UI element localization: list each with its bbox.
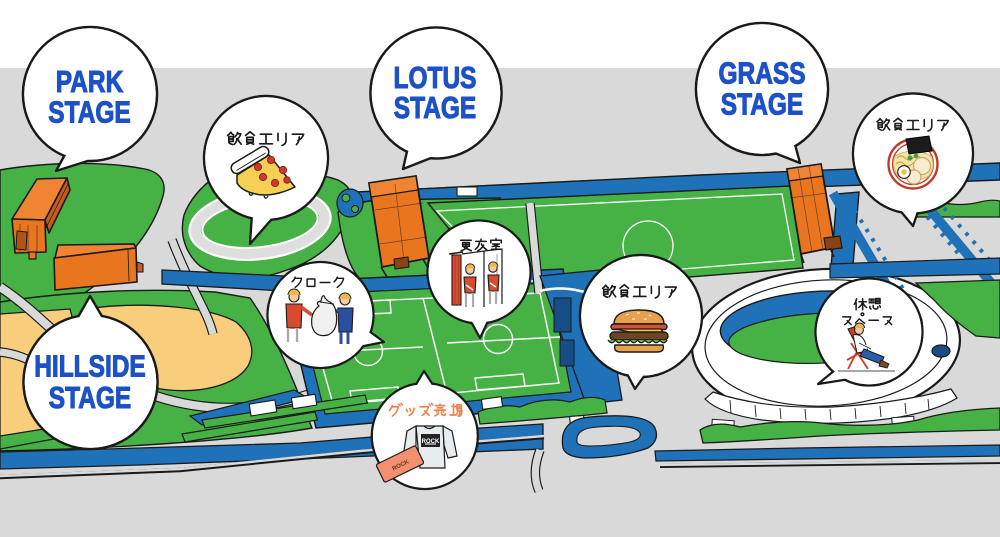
svg-text:STAGE: STAGE bbox=[394, 90, 477, 124]
svg-text:STAGE: STAGE bbox=[49, 380, 132, 414]
svg-text:STAGE: STAGE bbox=[48, 95, 131, 129]
svg-text:HILLSIDE: HILLSIDE bbox=[34, 349, 146, 383]
svg-text:STAGE: STAGE bbox=[721, 87, 804, 121]
svg-text:GRASS: GRASS bbox=[718, 56, 805, 90]
svg-text:PARK: PARK bbox=[56, 64, 124, 98]
